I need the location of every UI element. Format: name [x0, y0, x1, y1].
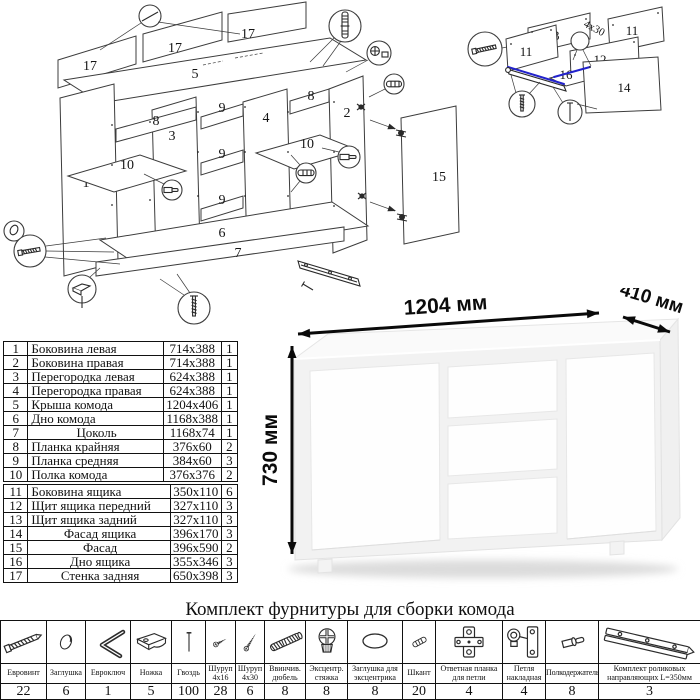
hardware-kit-title: Комплект фурнитуры для сборки комода — [0, 599, 700, 620]
hardware-name: Эксцентр. стяжка — [306, 664, 348, 684]
hardware-name: Шуруп 4x16 — [206, 664, 236, 684]
hardware-qty: 20 — [403, 684, 436, 700]
part-name: Перегородка правая — [28, 384, 163, 398]
parts-table-cabinet: 1 Боковина левая 714x388 1 2 Боковина пр… — [3, 341, 238, 482]
dresser-foot — [318, 559, 332, 573]
part-label: 6 — [219, 226, 226, 241]
drawer-assembly-diagram: 13 11 11 12 16 14 — [450, 0, 700, 150]
part-name: Дно комода — [28, 412, 163, 426]
part-size: 624x388 — [163, 384, 221, 398]
part-name: Полка комода — [28, 468, 163, 482]
part-number: 4 — [4, 384, 28, 398]
part-size: 376x60 — [163, 440, 221, 454]
part-qty: 1 — [221, 370, 237, 384]
part-row: 7 Цоколь 1168x74 1 — [4, 426, 238, 440]
part-qty: 3 — [221, 513, 237, 527]
hardware-name: Ножка — [131, 664, 172, 684]
part-row: 16 Дно ящика 355x346 3 — [4, 555, 238, 569]
part-name: Щит ящика задний — [28, 513, 170, 527]
part-size: 624x388 — [163, 370, 221, 384]
hardware-qty: 8 — [265, 684, 306, 700]
part-qty: 3 — [221, 569, 237, 583]
part-qty: 1 — [221, 384, 237, 398]
part-row: 9 Планка средняя 384x60 3 — [4, 454, 238, 468]
drawer-1[interactable] — [448, 360, 557, 418]
drawer-2[interactable] — [448, 419, 557, 476]
part-qty: 1 — [221, 426, 237, 440]
screw-large-icon — [236, 623, 265, 661]
part-number: 10 — [4, 468, 28, 482]
part-number: 7 — [4, 426, 28, 440]
part-size: 350x110 — [170, 485, 221, 499]
part-name: Боковина правая — [28, 356, 163, 370]
dresser-right-side — [660, 319, 680, 540]
hardware-icons-row — [1, 621, 700, 664]
part-name: Фасад — [28, 541, 170, 555]
part-size: 384x60 — [163, 454, 221, 468]
hardware-name: Гвоздь — [172, 664, 206, 684]
part-label: 11 — [520, 44, 533, 59]
part-number: 5 — [4, 398, 28, 412]
part-row: 2 Боковина правая 714x388 1 — [4, 356, 238, 370]
part-row: 12 Щит ящика передний 327x110 3 — [4, 499, 238, 513]
part-row: 14 Фасад ящика 396x170 3 — [4, 527, 238, 541]
hardware-name: Шкант — [403, 664, 436, 684]
part-size: 396x170 — [170, 527, 221, 541]
part-name: Фасад ящика — [28, 527, 170, 541]
part-qty: 3 — [221, 454, 237, 468]
right-door[interactable] — [566, 353, 656, 539]
part-size: 396x590 — [170, 541, 221, 555]
part-label: 9 — [219, 147, 226, 162]
part-size: 1204x406 — [163, 398, 221, 412]
dresser-foot — [610, 541, 624, 555]
part-number: 3 — [4, 370, 28, 384]
part-qty: 3 — [221, 555, 237, 569]
hardware-kit-table: Евровинт Заглушка Евроключ Ножка Гвоздь … — [0, 620, 700, 700]
part-label: 8 — [308, 89, 315, 104]
part-back-panel — [228, 2, 306, 42]
hardware-name: Евровинт — [1, 664, 47, 684]
part-number: 11 — [4, 485, 28, 499]
part-size: 355x346 — [170, 555, 221, 569]
drawer-3[interactable] — [448, 477, 557, 539]
hardware-name: Ответная планка для петли — [436, 664, 503, 684]
hardware-qty: 22 — [1, 684, 47, 700]
cam-cap-icon — [348, 623, 403, 661]
part-label: 14 — [618, 80, 632, 95]
threaded-dowel-icon — [341, 12, 350, 38]
part-size: 650x398 — [170, 569, 221, 583]
part-qty: 3 — [221, 527, 237, 541]
shelf-pin-icon — [340, 154, 356, 159]
hardware-name: Заглушка — [47, 664, 86, 684]
part-label: 10 — [300, 137, 314, 152]
part-name: Перегородка левая — [28, 370, 163, 384]
assembly-instruction-sheet: 17 17 17 5 1 3 4 2 8 8 9 9 9 — [0, 0, 700, 700]
hardware-name: Комплект роликовых направляющих L=350мм — [599, 664, 700, 684]
part-label: 10 — [120, 158, 134, 173]
depth-dimension-label: 410 мм — [617, 288, 685, 318]
wood-dowel-icon — [403, 623, 436, 661]
part-qty: 1 — [221, 412, 237, 426]
hardware-names-row: Евровинт Заглушка Евроключ Ножка Гвоздь … — [1, 664, 700, 684]
part-number: 15 — [4, 541, 28, 555]
part-row: 11 Боковина ящика 350x110 6 — [4, 485, 238, 499]
part-qty: 3 — [221, 499, 237, 513]
hinge-plate-icon — [447, 623, 491, 661]
part-label: 17 — [168, 41, 182, 56]
part-label: 17 — [241, 27, 255, 42]
hardware-qty: 8 — [546, 684, 599, 700]
hardware-name: Полкодержатель — [546, 664, 599, 684]
part-number: 17 — [4, 569, 28, 583]
part-number: 1 — [4, 342, 28, 356]
part-name: Щит ящика передний — [28, 499, 170, 513]
hardware-kit-section: Комплект фурнитуры для сборки комода — [0, 599, 700, 700]
hardware-qty-row: 22 6 1 5 100 28 6 8 8 8 20 4 4 8 3 — [1, 684, 700, 700]
floor-shadow — [288, 560, 678, 578]
hardware-qty: 8 — [348, 684, 403, 700]
part-size: 714x388 — [163, 356, 221, 370]
part-size: 327x110 — [170, 513, 221, 527]
hardware-name: Ввинчив. дюбель — [265, 664, 306, 684]
drawer-slide-icon — [600, 623, 700, 661]
part-number: 9 — [4, 454, 28, 468]
part-qty: 2 — [221, 440, 237, 454]
part-name: Цоколь — [28, 426, 163, 440]
part-qty: 2 — [221, 468, 237, 482]
part-number: 12 — [4, 499, 28, 513]
part-qty: 1 — [221, 398, 237, 412]
threaded-dowel-icon — [265, 623, 306, 661]
part-size: 1168x74 — [163, 426, 221, 440]
drawer-slide-icon — [298, 261, 360, 286]
part-row: 17 Стенка задняя 650x398 3 — [4, 569, 238, 583]
part-name: Планка средняя — [28, 454, 163, 468]
hinge-icon — [503, 623, 546, 661]
euro-screw-icon — [2, 623, 46, 661]
part-label: 11 — [626, 23, 639, 38]
hex-key-icon — [86, 623, 130, 661]
nail-icon — [174, 623, 204, 661]
hardware-qty: 6 — [47, 684, 86, 700]
hardware-name: Шуруп 4x30 — [236, 664, 265, 684]
part-size: 376x376 — [163, 468, 221, 482]
hardware-qty: 5 — [131, 684, 172, 700]
dresser-dimension-drawing: 1204 мм 410 мм 730 мм — [258, 288, 700, 600]
part-name: Дно ящика — [28, 555, 170, 569]
hardware-qty: 6 — [236, 684, 265, 700]
part-label: 3 — [169, 129, 176, 144]
part-qty: 2 — [221, 541, 237, 555]
hardware-name: Петля накладная — [503, 664, 546, 684]
part-row: 5 Крыша комода 1204x406 1 — [4, 398, 238, 412]
hardware-name: Евроключ — [86, 664, 131, 684]
hardware-qty: 4 — [436, 684, 503, 700]
part-qty: 1 — [221, 356, 237, 370]
hardware-name: Заглушка для эксцентрика — [348, 664, 403, 684]
part-qty: 1 — [221, 342, 237, 356]
hardware-qty: 8 — [306, 684, 348, 700]
part-qty: 6 — [221, 485, 237, 499]
part-label: 9 — [219, 101, 226, 116]
part-label: 7 — [235, 246, 242, 261]
hardware-qty: 4 — [503, 684, 546, 700]
part-number: 14 — [4, 527, 28, 541]
part-number: 16 — [4, 555, 28, 569]
part-name: Стенка задняя — [28, 569, 170, 583]
part-number: 2 — [4, 356, 28, 370]
shelf-pin-icon — [164, 188, 178, 193]
part-name: Боковина ящика — [28, 485, 170, 499]
hardware-qty: 3 — [599, 684, 700, 700]
screw-small-icon — [206, 623, 235, 661]
wood-dowel-icon — [298, 170, 314, 176]
part-size: 327x110 — [170, 499, 221, 513]
part-label: 4 — [263, 111, 270, 126]
part-label: 5 — [192, 67, 199, 82]
part-name: Крыша комода — [28, 398, 163, 412]
part-label: 9 — [219, 193, 226, 208]
part-row: 13 Щит ящика задний 327x110 3 — [4, 513, 238, 527]
part-number: 6 — [4, 412, 28, 426]
height-dimension-label: 730 мм — [259, 414, 282, 486]
parts-table-drawers: 11 Боковина ящика 350x110 6 12 Щит ящика… — [3, 484, 238, 583]
part-label: 15 — [432, 170, 446, 185]
part-name: Планка крайняя — [28, 440, 163, 454]
screw-callout — [571, 32, 589, 50]
part-number: 8 — [4, 440, 28, 454]
parts-list: 1 Боковина левая 714x388 1 2 Боковина пр… — [3, 341, 238, 585]
part-size: 714x388 — [163, 342, 221, 356]
width-dimension-label: 1204 мм — [403, 291, 488, 320]
foot-icon — [131, 623, 172, 661]
hardware-qty: 100 — [172, 684, 206, 700]
part-label: 2 — [344, 106, 351, 121]
hardware-qty: 28 — [206, 684, 236, 700]
part-label: 17 — [83, 59, 97, 74]
part-name: Боковина левая — [28, 342, 163, 356]
part-row: 3 Перегородка левая 624x388 1 — [4, 370, 238, 384]
part-row: 1 Боковина левая 714x388 1 — [4, 342, 238, 356]
cam-lock-icon — [306, 623, 348, 661]
part-row: 4 Перегородка правая 624x388 1 — [4, 384, 238, 398]
part-row: 10 Полка комода 376x376 2 — [4, 468, 238, 482]
wood-dowel-icon — [387, 81, 402, 87]
part-row: 8 Планка крайняя 376x60 2 — [4, 440, 238, 454]
part-number: 13 — [4, 513, 28, 527]
cap-icon — [47, 623, 85, 661]
part-label: 8 — [153, 114, 160, 129]
shelf-pin-icon — [546, 623, 599, 661]
part-size: 1168x388 — [163, 412, 221, 426]
hardware-qty: 1 — [86, 684, 131, 700]
left-door[interactable] — [310, 363, 440, 550]
part-row: 15 Фасад 396x590 2 — [4, 541, 238, 555]
part-row: 6 Дно комода 1168x388 1 — [4, 412, 238, 426]
